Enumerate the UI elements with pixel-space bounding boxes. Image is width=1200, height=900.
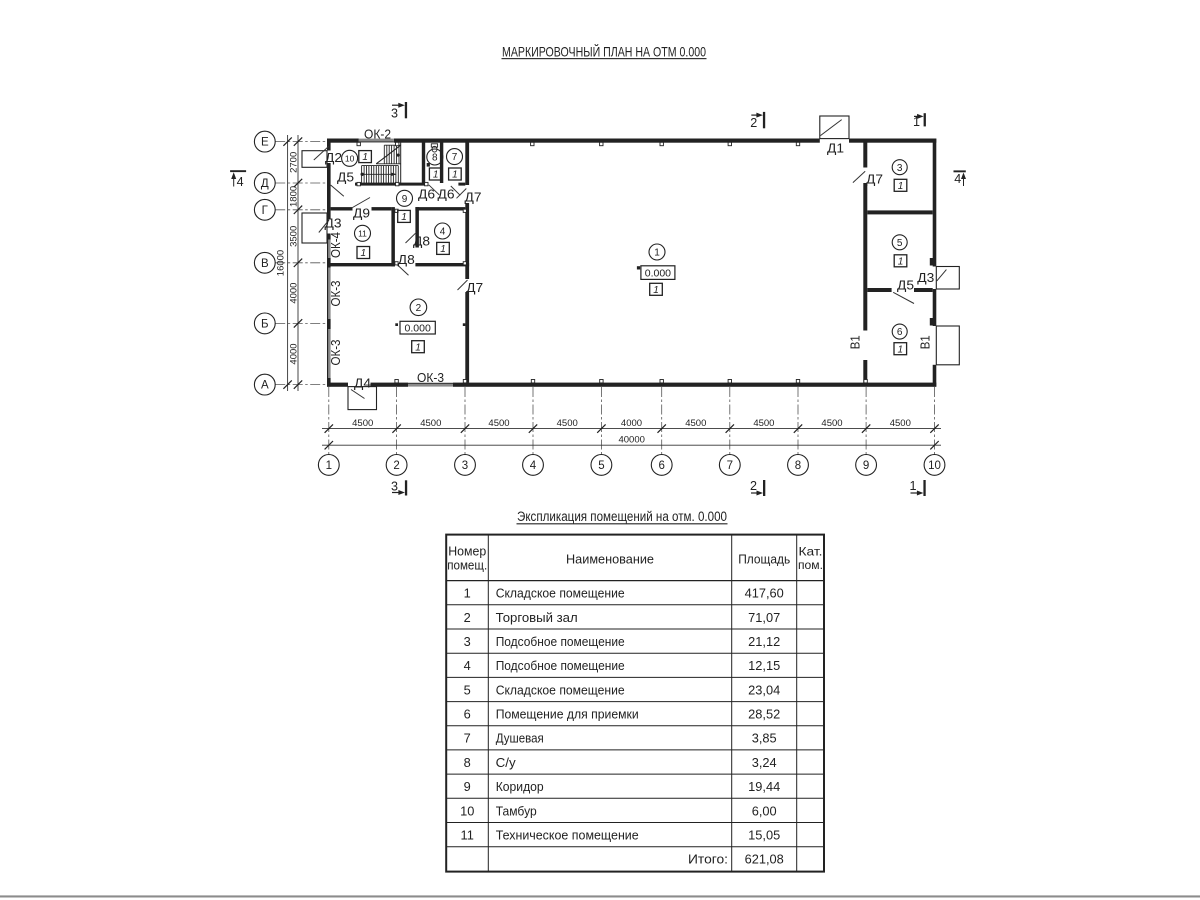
svg-text:Д3: Д3: [325, 216, 342, 231]
svg-text:1: 1: [464, 586, 471, 601]
svg-text:ОК-4: ОК-4: [329, 232, 343, 258]
svg-text:4000: 4000: [621, 418, 642, 429]
svg-text:ОК-3: ОК-3: [329, 339, 343, 365]
svg-text:Наименование: Наименование: [566, 552, 654, 567]
svg-text:8: 8: [464, 755, 471, 770]
svg-text:4: 4: [440, 227, 446, 238]
svg-text:1: 1: [362, 152, 368, 163]
svg-text:2: 2: [464, 610, 471, 625]
svg-text:6: 6: [464, 707, 471, 722]
svg-text:Складское помещение: Складское помещение: [496, 586, 625, 601]
svg-text:12,15: 12,15: [748, 658, 780, 673]
svg-text:1: 1: [433, 170, 439, 181]
svg-text:Д7: Д7: [866, 172, 883, 187]
svg-text:Е: Е: [261, 137, 269, 149]
svg-text:Итого:: Итого:: [688, 852, 728, 867]
svg-text:1: 1: [326, 460, 332, 472]
svg-text:Д8: Д8: [398, 252, 415, 267]
svg-text:Д7: Д7: [466, 280, 483, 295]
svg-text:1: 1: [415, 342, 421, 353]
svg-text:10: 10: [345, 153, 355, 163]
svg-text:4000: 4000: [289, 343, 300, 364]
svg-text:В: В: [261, 258, 269, 270]
svg-text:3: 3: [464, 634, 471, 649]
svg-text:В1: В1: [919, 335, 933, 349]
svg-text:Торговый зал: Торговый зал: [496, 610, 578, 625]
svg-text:1: 1: [654, 248, 660, 259]
svg-text:1: 1: [898, 344, 904, 355]
svg-text:6: 6: [897, 327, 903, 338]
svg-text:417,60: 417,60: [745, 586, 784, 601]
svg-text:Д6: Д6: [418, 187, 435, 202]
svg-text:7: 7: [727, 460, 733, 472]
svg-text:1: 1: [401, 212, 407, 223]
svg-text:4500: 4500: [488, 418, 509, 429]
svg-text:4: 4: [954, 172, 961, 186]
svg-text:4500: 4500: [685, 418, 706, 429]
svg-text:Д9: Д9: [353, 206, 370, 221]
svg-text:Кат.: Кат.: [799, 545, 823, 559]
svg-text:4500: 4500: [890, 418, 911, 429]
svg-text:Б: Б: [261, 319, 269, 331]
svg-text:0.000: 0.000: [645, 267, 671, 279]
svg-text:1: 1: [452, 170, 458, 181]
svg-text:1: 1: [653, 285, 659, 296]
svg-text:Подсобное помещение: Подсобное помещение: [496, 634, 625, 649]
svg-text:1: 1: [440, 244, 446, 255]
svg-text:3,24: 3,24: [752, 755, 777, 770]
svg-text:4: 4: [237, 175, 244, 189]
svg-text:6,00: 6,00: [752, 803, 777, 818]
svg-text:4: 4: [464, 658, 471, 673]
svg-text:ОК-3: ОК-3: [329, 280, 343, 306]
svg-text:1: 1: [898, 181, 904, 192]
svg-text:21,12: 21,12: [748, 634, 780, 649]
svg-text:6: 6: [658, 460, 664, 472]
svg-text:А: А: [261, 380, 269, 392]
svg-text:3: 3: [462, 460, 468, 472]
svg-text:Д6: Д6: [438, 187, 455, 202]
svg-text:Д7: Д7: [465, 190, 482, 205]
svg-text:Подсобное помещение: Подсобное помещение: [496, 658, 625, 673]
svg-text:Д: Д: [261, 178, 269, 190]
svg-text:С/у: С/у: [496, 755, 517, 770]
svg-text:ОК-2: ОК-2: [364, 126, 391, 141]
svg-text:2: 2: [416, 303, 422, 314]
svg-text:40000: 40000: [618, 435, 644, 446]
svg-text:4: 4: [530, 460, 537, 472]
svg-text:2: 2: [750, 116, 757, 130]
svg-text:15,05: 15,05: [748, 828, 780, 843]
svg-text:В1: В1: [849, 335, 863, 349]
svg-text:1: 1: [910, 479, 917, 493]
svg-text:3: 3: [391, 107, 398, 121]
svg-text:1800: 1800: [289, 186, 300, 207]
svg-text:71,07: 71,07: [748, 610, 780, 625]
svg-text:1: 1: [913, 115, 920, 129]
svg-text:9: 9: [863, 460, 869, 472]
svg-text:23,04: 23,04: [748, 682, 780, 697]
svg-text:2700: 2700: [289, 152, 300, 173]
svg-text:Техническое помещение: Техническое помещение: [496, 828, 639, 843]
svg-text:7: 7: [464, 731, 471, 746]
svg-text:1: 1: [361, 248, 367, 259]
svg-text:4500: 4500: [352, 418, 373, 429]
svg-text:10: 10: [460, 803, 474, 818]
svg-text:ОК-3: ОК-3: [417, 370, 444, 385]
svg-text:4500: 4500: [753, 418, 774, 429]
svg-text:Г: Г: [262, 205, 269, 217]
svg-text:11: 11: [461, 828, 474, 843]
svg-text:3,85: 3,85: [752, 731, 777, 746]
svg-text:5: 5: [464, 682, 471, 697]
svg-text:2: 2: [750, 479, 757, 493]
svg-text:5: 5: [897, 238, 903, 249]
svg-text:3: 3: [391, 479, 398, 493]
svg-text:Помещение для приемки: Помещение для приемки: [496, 707, 639, 722]
svg-text:Д8: Д8: [413, 234, 430, 249]
svg-text:МАРКИРОВОЧНЫЙ ПЛАН НА ОТМ 0.00: МАРКИРОВОЧНЫЙ ПЛАН НА ОТМ 0.000: [502, 43, 706, 60]
svg-text:4500: 4500: [821, 418, 842, 429]
svg-text:10: 10: [928, 460, 941, 472]
svg-text:11: 11: [358, 228, 367, 238]
svg-text:помещ.: помещ.: [447, 558, 487, 573]
svg-text:Д2: Д2: [325, 150, 342, 165]
svg-text:Д4: Д4: [354, 376, 371, 391]
svg-text:2: 2: [393, 460, 399, 472]
svg-text:9: 9: [402, 194, 408, 205]
svg-text:Экспликация помещений на отм.: Экспликация помещений на отм. 0.000: [517, 509, 727, 524]
svg-text:5: 5: [598, 460, 604, 472]
svg-text:8: 8: [432, 153, 438, 164]
svg-text:Д1: Д1: [827, 140, 844, 155]
svg-text:Д3: Д3: [917, 270, 934, 285]
svg-text:Д5: Д5: [897, 278, 914, 293]
svg-text:пом.: пом.: [798, 558, 823, 572]
svg-text:Площадь: Площадь: [738, 552, 790, 567]
svg-text:4000: 4000: [289, 283, 300, 304]
svg-text:3: 3: [897, 163, 903, 174]
svg-text:0.000: 0.000: [405, 322, 431, 334]
svg-text:4500: 4500: [557, 418, 578, 429]
svg-text:Д5: Д5: [337, 170, 354, 185]
svg-text:8: 8: [795, 460, 801, 472]
svg-text:Коридор: Коридор: [496, 779, 544, 794]
svg-text:28,52: 28,52: [748, 707, 780, 722]
svg-text:Душевая: Душевая: [496, 731, 544, 746]
svg-text:19,44: 19,44: [748, 779, 780, 794]
svg-text:4500: 4500: [420, 418, 441, 429]
svg-text:7: 7: [452, 152, 458, 163]
svg-text:16000: 16000: [275, 250, 286, 276]
svg-text:3500: 3500: [289, 226, 300, 247]
svg-text:Номер: Номер: [448, 544, 486, 559]
svg-text:1: 1: [898, 256, 904, 267]
svg-text:Складское помещение: Складское помещение: [496, 682, 625, 697]
svg-text:Тамбур: Тамбур: [496, 803, 537, 818]
svg-text:621,08: 621,08: [745, 852, 784, 867]
svg-text:9: 9: [464, 779, 471, 794]
